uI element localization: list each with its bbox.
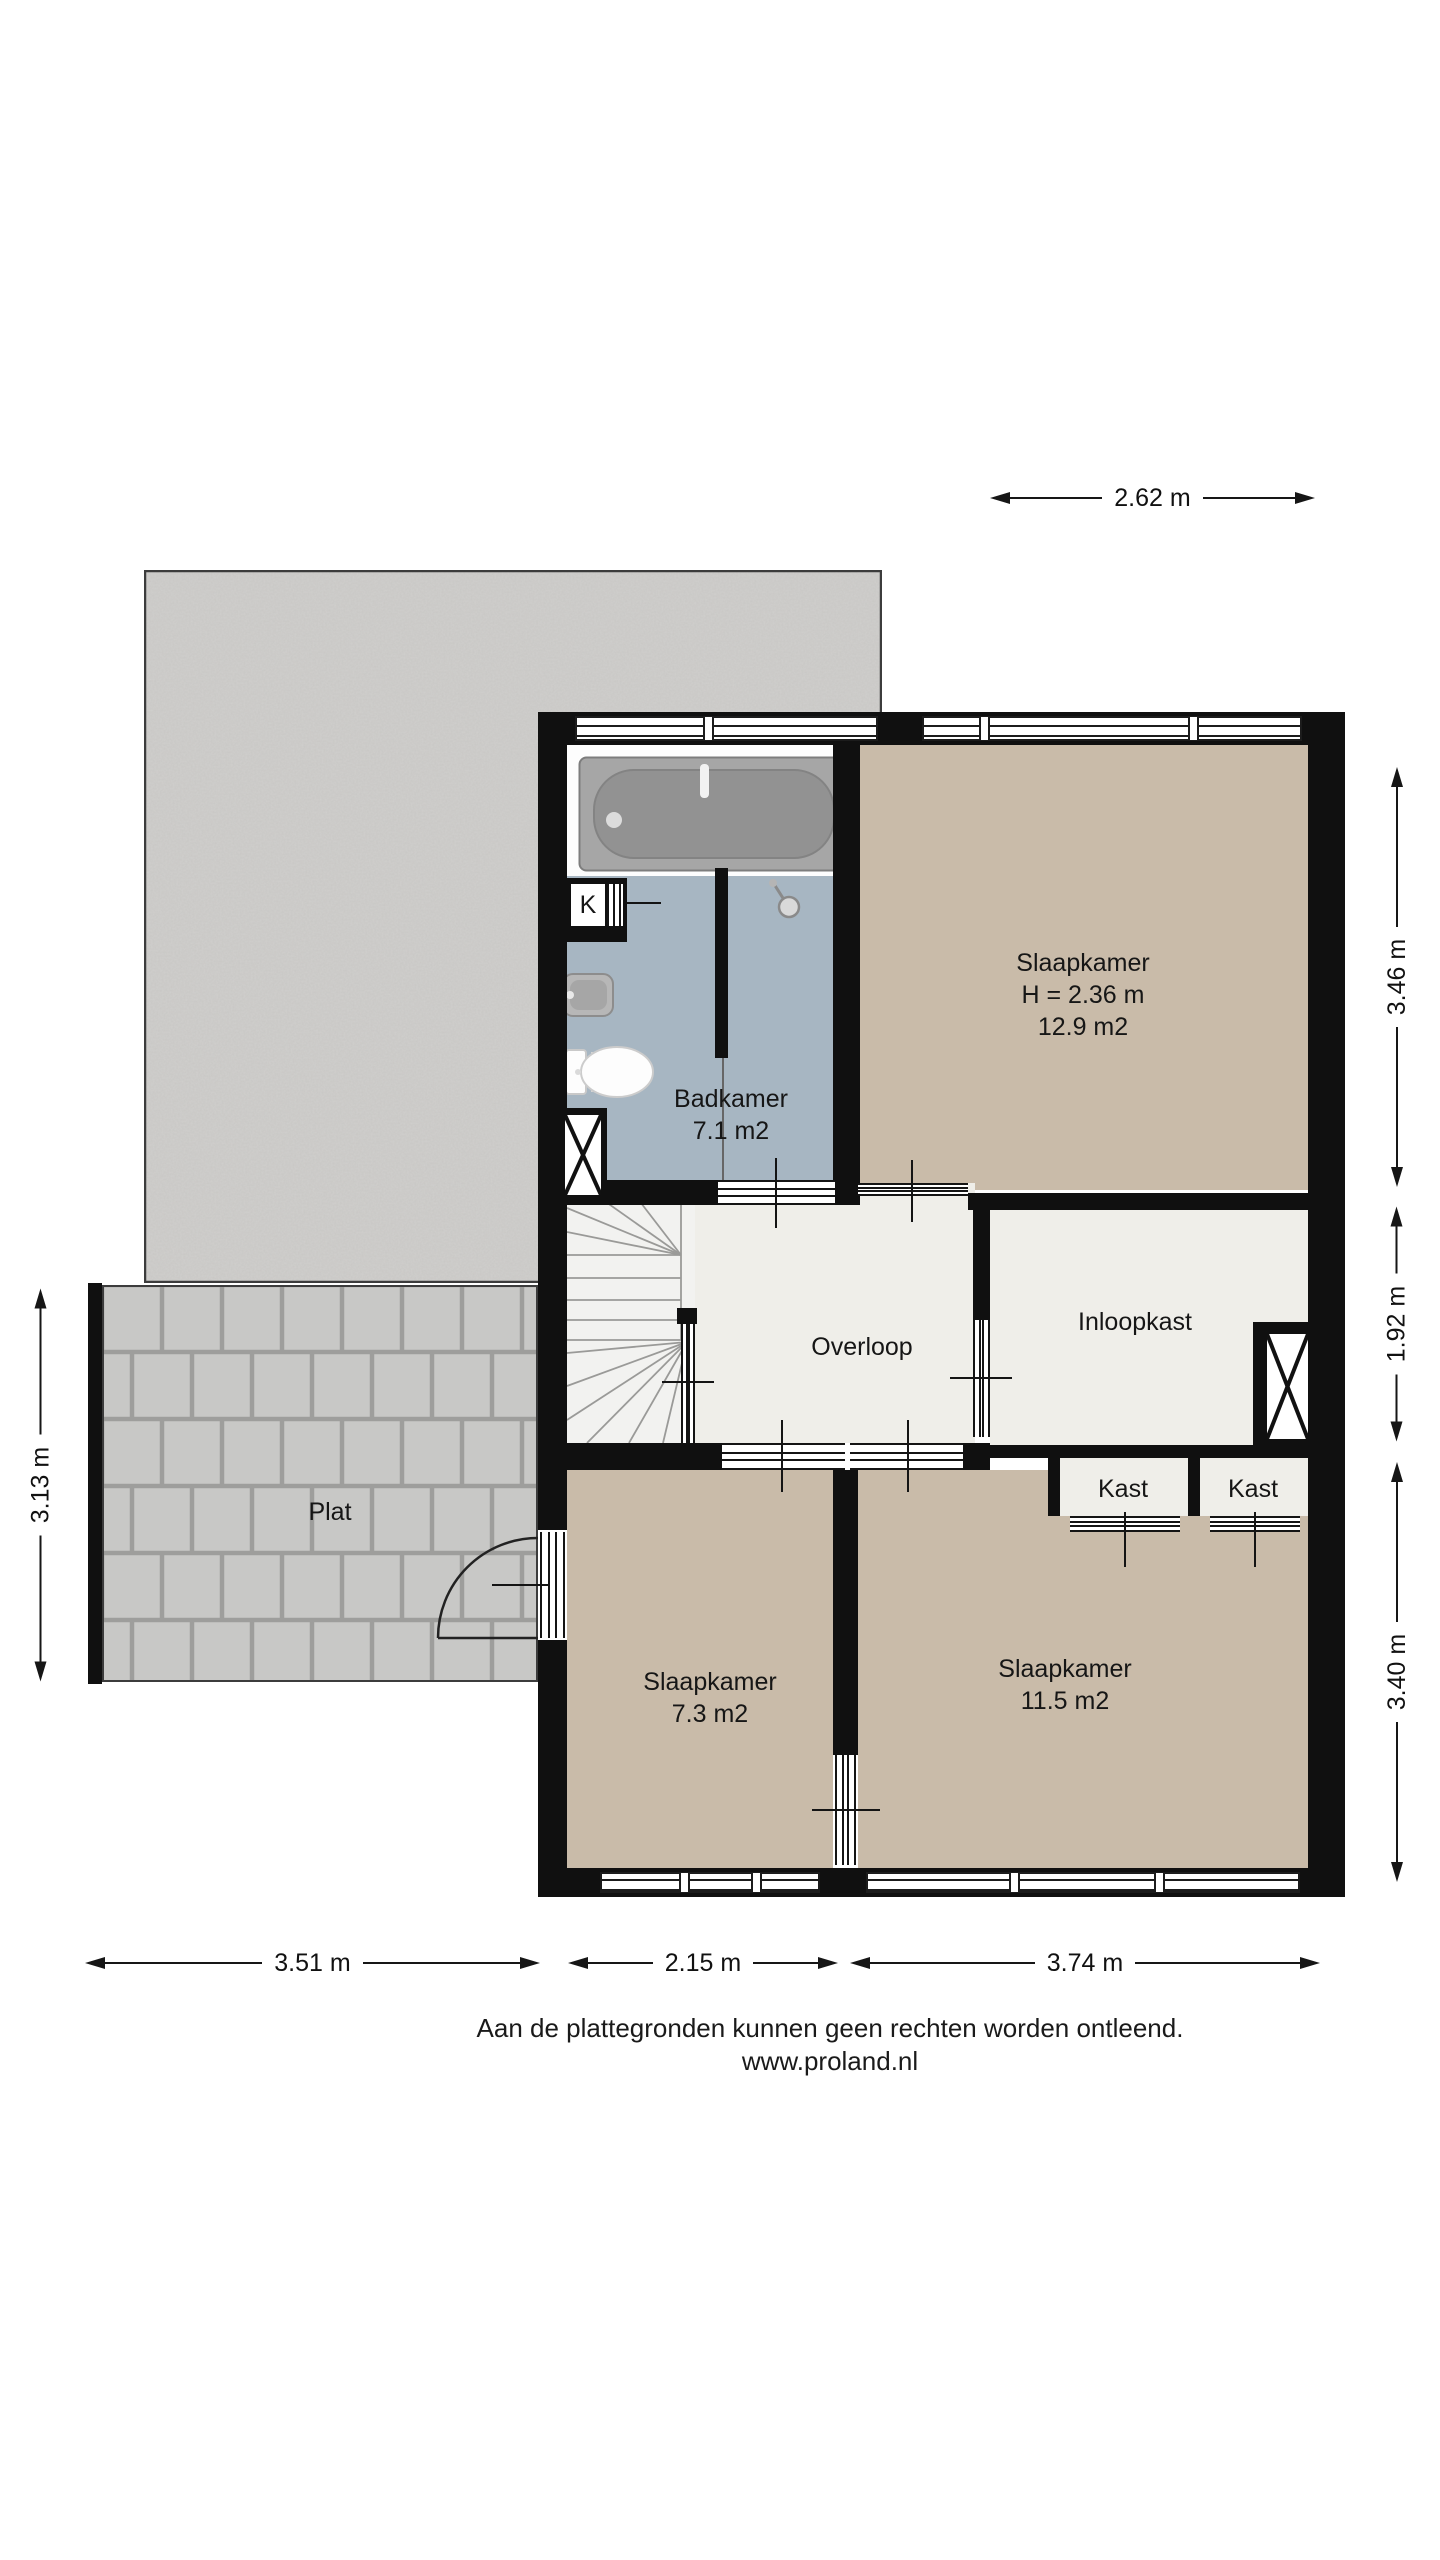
dimension-right-middle: 1.92 m xyxy=(1379,1207,1415,1442)
dimension-right-lower: 3.40 m xyxy=(1379,1462,1415,1882)
window-slaapkamer-midden-bottom xyxy=(866,1872,1300,1893)
footer-website: www.proland.nl xyxy=(477,2045,1184,2078)
room-name: Plat xyxy=(308,1496,351,1528)
door-tick xyxy=(781,1420,783,1492)
window-mullion xyxy=(679,1873,690,1892)
wall-badkamer-slaapkamer xyxy=(833,740,860,1205)
dimension-value: 3.51 m xyxy=(262,1949,362,1978)
dimension-left: 3.13 m xyxy=(23,1289,59,1682)
room-label-kast-links: Kast xyxy=(1098,1473,1148,1505)
floorplan-canvas: K Badkamer 7.1 m2 Slaapkamer H = 2.36 m … xyxy=(0,0,1440,2560)
door-swing-arc xyxy=(430,1528,542,1642)
room-name: Overloop xyxy=(811,1331,912,1363)
dimension-bottom-right: 3.74 m xyxy=(850,1945,1320,1981)
footer-disclaimer: Aan de plattegronden kunnen geen rechten… xyxy=(477,2012,1184,2045)
room-label-kast-rechts: Kast xyxy=(1228,1473,1278,1505)
window-mullion xyxy=(1009,1873,1020,1892)
room-ceiling-height: H = 2.36 m xyxy=(1016,979,1149,1011)
window-slaapkamer-klein-bottom xyxy=(600,1872,820,1893)
room-label-slaapkamer-groot: Slaapkamer H = 2.36 m 12.9 m2 xyxy=(1016,947,1149,1043)
arrowhead-right-icon xyxy=(520,1957,540,1969)
toilet xyxy=(564,1044,656,1100)
plat-left-edge xyxy=(88,1283,102,1684)
wall-inloopkast-top xyxy=(968,1193,1308,1210)
room-area: 7.1 m2 xyxy=(674,1115,788,1147)
room-label-overloop: Overloop xyxy=(811,1331,912,1363)
balustrade-tick xyxy=(662,1381,714,1383)
room-label-inloopkast: Inloopkast xyxy=(1078,1306,1192,1338)
shaft-inloopkast-x xyxy=(1267,1334,1308,1439)
dimension-value: 1.92 m xyxy=(1382,1274,1411,1374)
room-area: 11.5 m2 xyxy=(998,1685,1131,1717)
exterior-wall-right xyxy=(1308,712,1345,1897)
arrowhead-right-icon xyxy=(1391,1207,1403,1227)
arrowhead-left-icon xyxy=(1391,1862,1403,1882)
shaft-badkamer-x xyxy=(565,1115,601,1195)
door-slaapkamer-groot xyxy=(858,1183,968,1196)
k-shaft-label-box: K xyxy=(571,884,605,926)
door-tick xyxy=(1254,1512,1256,1567)
door-tick xyxy=(812,1809,880,1811)
arrowhead-right-icon xyxy=(818,1957,838,1969)
wall-overloop-bottom-left xyxy=(567,1443,722,1470)
dimension-bottom-left: 3.51 m xyxy=(85,1945,540,1981)
shower-head-icon xyxy=(762,876,806,922)
arrowhead-right-icon xyxy=(1391,767,1403,787)
wall-overloop-inloopkast xyxy=(973,1193,990,1320)
footer: Aan de plattegronden kunnen geen rechten… xyxy=(477,2012,1184,2078)
arrowhead-right-icon xyxy=(35,1289,47,1309)
door-tick xyxy=(1124,1512,1126,1567)
room-name: Kast xyxy=(1228,1473,1278,1505)
arrowhead-right-icon xyxy=(1300,1957,1320,1969)
window-mullion xyxy=(703,717,714,740)
exterior-wall-left-lower xyxy=(538,1640,567,1897)
dimension-value: 3.46 m xyxy=(1383,927,1412,1027)
staircase xyxy=(567,1190,695,1443)
arrowhead-right-icon xyxy=(1391,1462,1403,1482)
arrowhead-left-icon xyxy=(1391,1167,1403,1187)
window-badkamer-top xyxy=(575,716,878,741)
window-mullion xyxy=(751,1873,762,1892)
dimension-value: 2.62 m xyxy=(1102,484,1202,513)
room-label-slaapkamer-klein: Slaapkamer 7.3 m2 xyxy=(643,1666,776,1730)
dimension-value: 3.40 m xyxy=(1383,1622,1412,1722)
room-name: Slaapkamer xyxy=(1016,947,1149,979)
room-name: Kast xyxy=(1098,1473,1148,1505)
window-mullion xyxy=(1188,717,1199,740)
room-name: Slaapkamer xyxy=(998,1653,1131,1685)
arrowhead-left-icon xyxy=(85,1957,105,1969)
door-tick xyxy=(911,1160,913,1222)
wall-inloopkast-bottom xyxy=(990,1445,1308,1458)
room-label-plat: Plat xyxy=(308,1496,351,1528)
wall-kast-divider xyxy=(1188,1458,1200,1516)
washbasin xyxy=(561,972,615,1018)
room-label-slaapkamer-midden: Slaapkamer 11.5 m2 xyxy=(998,1653,1131,1717)
room-name: Inloopkast xyxy=(1078,1306,1192,1338)
door-tick xyxy=(775,1158,777,1228)
wall-badkamer-internal xyxy=(715,868,728,1058)
room-label-badkamer: Badkamer 7.1 m2 xyxy=(674,1083,788,1147)
wall-overloop-bottom-corner xyxy=(963,1443,990,1470)
arrowhead-right-icon xyxy=(1295,492,1315,504)
door-tick xyxy=(950,1377,1012,1379)
k-shaft-label: K xyxy=(580,891,597,920)
arrowhead-left-icon xyxy=(990,492,1010,504)
window-mullion xyxy=(979,717,990,740)
dimension-right-upper: 3.46 m xyxy=(1379,767,1415,1187)
wall-kast-left xyxy=(1048,1458,1060,1516)
dimension-value: 3.74 m xyxy=(1035,1949,1135,1978)
k-shaft-vent xyxy=(607,884,623,926)
room-area: 7.3 m2 xyxy=(643,1698,776,1730)
door-tick xyxy=(907,1420,909,1492)
arrowhead-left-icon xyxy=(850,1957,870,1969)
door-slaapkamer-klein xyxy=(722,1443,845,1470)
room-name: Slaapkamer xyxy=(643,1666,776,1698)
room-area: 12.9 m2 xyxy=(1016,1011,1149,1043)
arrowhead-left-icon xyxy=(568,1957,588,1969)
dimension-top: 2.62 m xyxy=(990,480,1315,516)
window-mullion xyxy=(1154,1873,1165,1892)
bathtub xyxy=(578,756,850,872)
window-slaapkamer-groot-top xyxy=(922,716,1302,741)
k-shaft-leader-line xyxy=(627,902,661,904)
stair-newel-post xyxy=(677,1308,697,1324)
dimension-bottom-middle: 2.15 m xyxy=(568,1945,838,1981)
arrowhead-left-icon xyxy=(1391,1422,1403,1442)
dimension-value: 3.13 m xyxy=(26,1435,55,1535)
dimension-value: 2.15 m xyxy=(653,1949,753,1978)
wall-slaapkamer-divider xyxy=(833,1470,858,1755)
room-name: Badkamer xyxy=(674,1083,788,1115)
arrowhead-left-icon xyxy=(35,1662,47,1682)
